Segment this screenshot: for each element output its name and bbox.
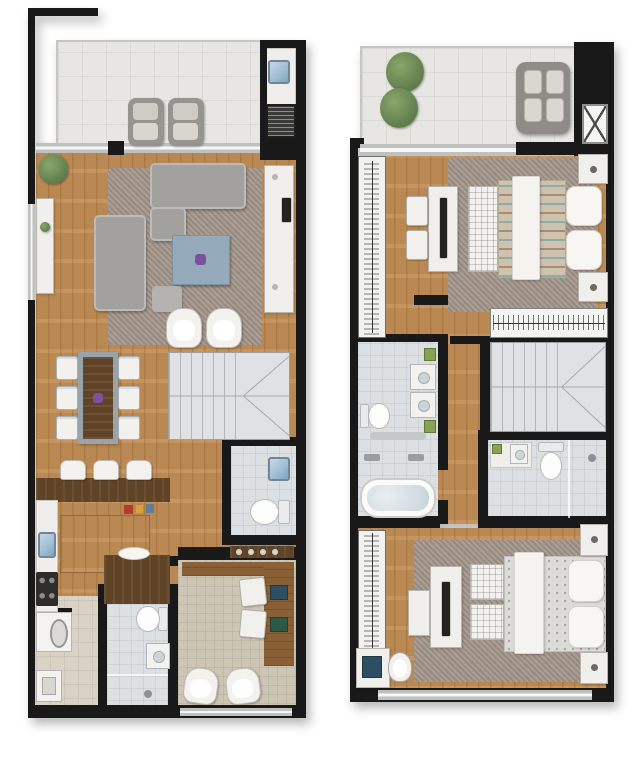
shelf-item [260, 549, 266, 555]
office-chair [388, 652, 412, 682]
washbasin [510, 444, 528, 464]
towel-rail [370, 432, 426, 440]
staircase-lower [168, 352, 290, 440]
tv [282, 198, 291, 222]
toilet [136, 605, 168, 631]
lounge-chair [128, 98, 164, 146]
washbasin [268, 457, 290, 481]
coffee-table [172, 235, 230, 285]
plant [424, 420, 436, 433]
foot-bench [468, 186, 498, 272]
wardrobe [358, 530, 386, 654]
shower-screen [568, 440, 570, 518]
wall-segment [260, 135, 306, 160]
lower-floor-plan [26, 8, 308, 732]
ottoman [470, 604, 504, 640]
gourmet-sink [268, 60, 290, 84]
wall-segment [414, 295, 448, 305]
wall-segment [350, 140, 358, 702]
loveseat [94, 215, 146, 311]
upper-floor-plan [350, 40, 614, 732]
shelf-item [236, 549, 242, 555]
washbasin [410, 364, 436, 390]
bar-stool [60, 460, 86, 480]
office-chair [239, 577, 268, 608]
door-block [516, 142, 574, 155]
dining-chair [118, 356, 140, 380]
ottoman [470, 564, 504, 600]
nightstand-decor [590, 166, 597, 173]
laptop [270, 585, 288, 600]
corner-plant [38, 154, 68, 184]
bar-stool [93, 460, 119, 480]
armchair [206, 308, 242, 348]
shelf-item [272, 549, 278, 555]
nightstand-decor [590, 284, 597, 291]
toilet [536, 442, 564, 480]
tv [440, 198, 447, 258]
plant [492, 444, 502, 454]
nightstand-decor [591, 664, 598, 671]
island-basin [118, 547, 150, 560]
shelf-item [248, 549, 254, 555]
decor-item [272, 284, 278, 290]
office-chair [239, 609, 267, 639]
decor-item [272, 174, 278, 180]
chair [406, 230, 428, 260]
bathtub [360, 478, 436, 518]
wall-segment [28, 8, 98, 16]
washbasin [146, 643, 170, 669]
pillow [566, 186, 602, 226]
lounge-cushion [524, 70, 542, 94]
dining-chair [56, 356, 78, 380]
pillow [566, 230, 602, 270]
laptop [270, 617, 288, 632]
shower-screen [107, 674, 168, 676]
dining-chair [118, 386, 140, 410]
console-table [36, 198, 54, 294]
balcony-plant [386, 52, 424, 92]
tv [442, 582, 450, 636]
living-window [28, 204, 35, 300]
dining-chair [118, 416, 140, 440]
wall-segment [222, 437, 231, 545]
dining-chair [56, 386, 78, 410]
lounge-cushion [524, 98, 542, 122]
bed-runner [512, 176, 540, 280]
plant [40, 222, 50, 232]
wall-segment [260, 40, 306, 48]
nightstand-decor [591, 536, 598, 543]
floorplan-canvas [0, 0, 640, 768]
shower-head [588, 454, 596, 462]
wall-segment [480, 342, 490, 432]
bedroom2-window [378, 690, 592, 700]
sofa [150, 163, 246, 209]
toilet [250, 498, 290, 524]
sideboard [264, 165, 294, 313]
dining-table [78, 352, 118, 444]
kitchen-decor [124, 505, 133, 514]
pillow [568, 560, 604, 602]
chair [406, 196, 428, 226]
wall-segment [438, 334, 448, 470]
barbecue-grill [266, 104, 296, 138]
office-desk [264, 562, 294, 666]
office-window [180, 708, 292, 716]
armchair [166, 308, 202, 348]
lounge-cushion [546, 70, 564, 94]
staircase-upper [490, 342, 606, 432]
wall-segment [606, 154, 614, 702]
office-shelf [182, 562, 266, 576]
laptop [362, 656, 382, 678]
washbasin [410, 392, 436, 418]
washing-machine [36, 612, 72, 652]
kitchen-peninsula [104, 555, 170, 604]
door-block [108, 141, 124, 155]
cooktop [36, 572, 58, 606]
kitchen-decor [146, 504, 154, 513]
bed-runner [514, 552, 544, 654]
wardrobe [358, 156, 386, 338]
lounge-cushion [546, 98, 564, 122]
dining-chair [56, 416, 78, 440]
elevator-symbol [582, 104, 608, 144]
faucet [408, 454, 424, 461]
kitchen-decor [136, 505, 143, 513]
wall-segment [28, 8, 35, 713]
plant [424, 348, 436, 361]
balcony-plant [380, 88, 418, 128]
toilet [360, 402, 390, 428]
wall-segment [478, 430, 488, 524]
laundry-sink [36, 670, 62, 702]
shower-head [144, 690, 152, 698]
faucet [364, 454, 380, 461]
bar-stool [126, 460, 152, 480]
clothes-rack [490, 308, 608, 338]
pillow [568, 606, 604, 648]
kitchen-sink [38, 532, 56, 558]
bar-counter [36, 478, 170, 502]
wall-segment [222, 535, 298, 545]
lounge-chair [168, 98, 204, 146]
armchair [408, 590, 430, 636]
